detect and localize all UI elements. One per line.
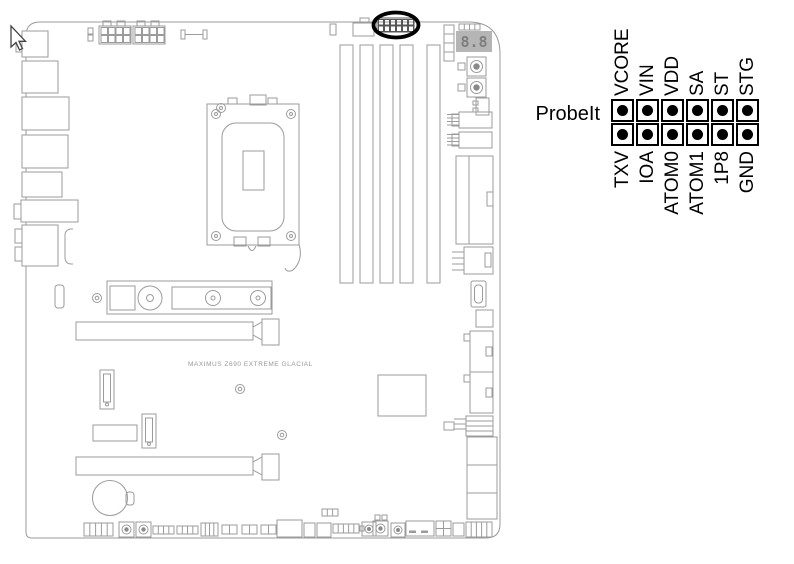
probeit-legend: ProbeIt VCORE VIN VDD SA ST STG TXV IOA … — [0, 0, 794, 564]
pin-label-top: VCORE — [612, 28, 633, 96]
pin-dot — [692, 129, 703, 140]
pin-cell — [661, 99, 684, 122]
pin-label-bottom: IOA — [637, 151, 658, 184]
pin-dot — [717, 105, 728, 116]
pin-label-bottom: 1P8 — [712, 151, 733, 185]
probeit-pin-row-top — [611, 99, 759, 122]
pin-cell — [611, 99, 634, 122]
pin-dot — [692, 105, 703, 116]
pin-label-bottom: ATOM0 — [662, 151, 683, 215]
pin-label-bottom: ATOM1 — [687, 151, 708, 215]
pin-cell — [736, 123, 759, 146]
pin-cell — [711, 123, 734, 146]
pin-cell — [686, 123, 709, 146]
pin-label-top: ST — [712, 72, 733, 96]
pin-cell — [686, 99, 709, 122]
pin-cell — [636, 123, 659, 146]
probeit-label: ProbeIt — [505, 103, 600, 126]
pin-dot — [667, 105, 678, 116]
pin-cell — [636, 99, 659, 122]
pin-dot — [642, 129, 653, 140]
pin-label-bottom: GND — [737, 151, 758, 193]
pin-dot — [667, 129, 678, 140]
pin-dot — [742, 105, 753, 116]
pin-label-bottom: TXV — [612, 151, 633, 188]
pin-dot — [717, 129, 728, 140]
pin-label-top: SA — [687, 71, 708, 96]
pin-dot — [617, 105, 628, 116]
pin-dot — [642, 105, 653, 116]
pin-label-top: STG — [737, 57, 758, 96]
manual-diagram-page: 8.8 — [0, 0, 794, 564]
pin-label-top: VIN — [637, 64, 658, 96]
pin-dot — [617, 129, 628, 140]
pin-label-top: VDD — [662, 56, 683, 96]
probeit-pin-row-bottom — [611, 123, 759, 146]
pin-cell — [611, 123, 634, 146]
pin-dot — [742, 129, 753, 140]
pin-cell — [661, 123, 684, 146]
pin-cell — [736, 99, 759, 122]
pin-cell — [711, 99, 734, 122]
